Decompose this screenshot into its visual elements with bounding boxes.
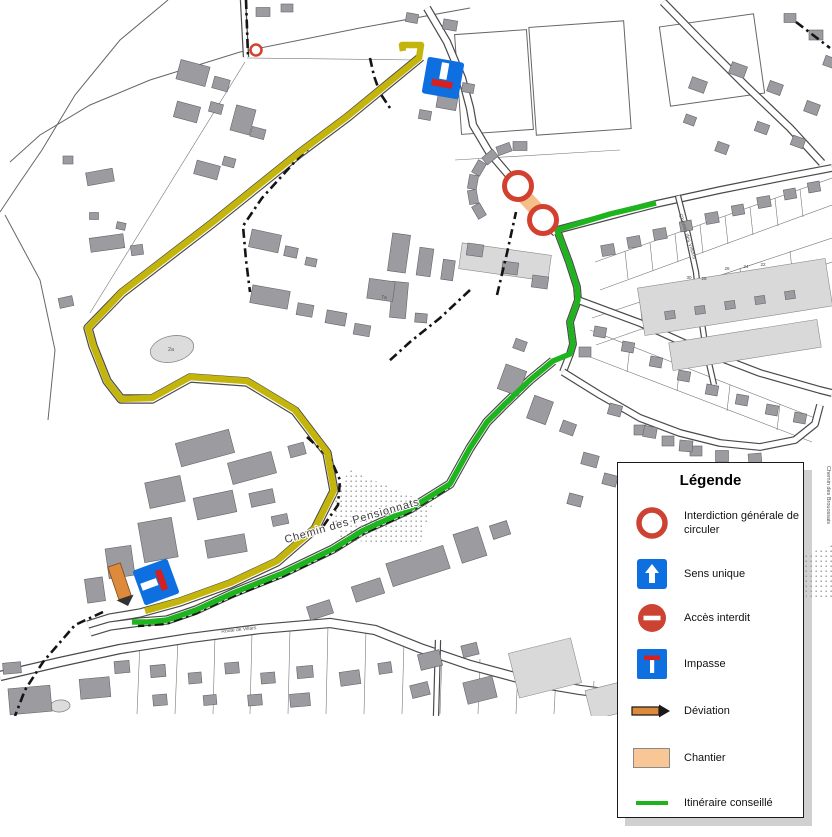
legend-item-itineraire: Itinéraire conseillé xyxy=(618,785,803,821)
building xyxy=(150,664,166,677)
building xyxy=(715,141,730,155)
building xyxy=(297,665,314,678)
building xyxy=(79,677,111,700)
parcel-line xyxy=(675,234,678,262)
building xyxy=(194,160,221,180)
building xyxy=(410,682,431,699)
building xyxy=(188,672,202,684)
building xyxy=(705,211,720,224)
sports-field xyxy=(529,21,631,135)
building xyxy=(86,168,115,185)
building xyxy=(767,80,784,95)
building xyxy=(531,275,549,289)
building xyxy=(664,310,675,319)
building xyxy=(90,213,99,220)
building xyxy=(463,676,497,705)
building xyxy=(116,222,126,231)
legend-item-deviation: Déviation xyxy=(618,693,803,729)
building xyxy=(296,303,314,318)
building xyxy=(305,257,317,267)
terrain-line xyxy=(5,215,55,420)
legend-title: Légende xyxy=(618,472,803,489)
building xyxy=(621,341,635,353)
building xyxy=(716,451,729,462)
building xyxy=(559,420,576,436)
road xyxy=(563,372,820,447)
building xyxy=(467,189,478,204)
deviation-map-image: Chemin des PensionnatsRoute de VillarsCh… xyxy=(0,0,832,837)
building xyxy=(461,642,479,658)
building xyxy=(416,247,434,277)
boundary-line xyxy=(796,22,830,48)
acces-interdit-icon xyxy=(631,602,673,634)
building xyxy=(679,440,693,452)
parcel-line xyxy=(90,62,245,313)
parcel-line xyxy=(326,625,328,714)
building xyxy=(731,204,745,216)
building xyxy=(153,694,168,706)
building xyxy=(114,660,130,673)
building xyxy=(804,100,821,115)
building xyxy=(418,110,431,121)
building xyxy=(288,442,307,458)
building xyxy=(130,244,143,256)
building xyxy=(306,600,333,621)
building xyxy=(754,121,770,135)
building xyxy=(250,126,266,139)
parcel-line xyxy=(725,216,728,244)
legend-label: Sens unique xyxy=(684,567,802,581)
building xyxy=(256,8,270,17)
interdiction-ring xyxy=(251,45,262,56)
street-label: Chemin des Brouossais xyxy=(825,466,831,524)
building xyxy=(643,425,658,438)
building xyxy=(84,577,105,603)
impasse-sign xyxy=(422,57,465,100)
building xyxy=(249,489,275,508)
building xyxy=(496,142,512,155)
building xyxy=(405,13,418,24)
legend-item-impasse: Impasse xyxy=(618,646,803,682)
stipple-area xyxy=(803,545,832,600)
building xyxy=(513,142,527,151)
building xyxy=(248,694,263,706)
deviation-icon xyxy=(631,702,673,720)
building xyxy=(378,662,392,675)
building xyxy=(705,384,719,396)
parcel-line xyxy=(750,207,753,235)
building xyxy=(466,243,484,257)
building xyxy=(579,347,591,357)
building xyxy=(784,290,795,299)
terrain-line xyxy=(10,8,470,162)
building xyxy=(593,326,607,338)
building xyxy=(387,233,410,273)
interdiction-ring xyxy=(505,173,532,200)
building xyxy=(339,670,361,687)
building xyxy=(289,693,310,708)
parcel-line xyxy=(455,150,620,160)
legend-label: Déviation xyxy=(684,704,802,718)
legend-label: Interdiction générale de circuler xyxy=(684,509,802,538)
chantier-icon xyxy=(631,747,673,769)
legend-item-acces-interdit: Accès interdit xyxy=(618,600,803,636)
parcel-line xyxy=(775,198,778,226)
legend-item-sens-unique: Sens unique xyxy=(618,556,803,592)
building xyxy=(193,490,237,520)
street-label: 22 xyxy=(760,262,766,267)
street-label: 7a xyxy=(381,295,387,301)
building xyxy=(757,195,772,208)
building xyxy=(683,114,696,126)
building xyxy=(225,662,240,674)
building xyxy=(203,694,217,705)
building xyxy=(442,19,458,31)
building xyxy=(567,493,583,507)
building xyxy=(467,174,478,189)
building xyxy=(581,452,600,468)
building xyxy=(677,370,691,382)
legend-label: Impasse xyxy=(684,657,802,671)
building xyxy=(222,156,236,168)
building xyxy=(138,517,178,562)
street-label: 28 xyxy=(701,276,707,281)
building xyxy=(8,685,52,715)
parcel-line xyxy=(247,58,418,60)
building xyxy=(783,188,797,200)
building xyxy=(453,527,487,564)
parcel-line xyxy=(288,629,290,714)
building xyxy=(261,672,276,684)
building xyxy=(472,160,487,177)
building xyxy=(63,156,73,164)
building xyxy=(724,300,735,309)
sports-fields xyxy=(455,14,765,135)
building xyxy=(627,235,642,248)
building xyxy=(415,313,428,323)
legend-panel: Légende Interdiction générale de circule… xyxy=(617,462,804,818)
building xyxy=(601,243,616,256)
building xyxy=(602,473,618,487)
building xyxy=(386,545,450,586)
parcel-line xyxy=(137,641,140,714)
building xyxy=(212,76,231,92)
terrain-line xyxy=(0,0,168,212)
building xyxy=(662,436,674,446)
building xyxy=(807,181,821,193)
building xyxy=(208,101,223,114)
parcel-line xyxy=(402,641,404,714)
building xyxy=(248,229,281,253)
building xyxy=(145,476,186,509)
building xyxy=(250,285,291,309)
building xyxy=(227,452,276,485)
building xyxy=(175,429,234,466)
building xyxy=(89,234,125,253)
building xyxy=(353,323,371,337)
building xyxy=(461,83,474,94)
building xyxy=(58,296,74,309)
parcel-line xyxy=(727,385,730,411)
building xyxy=(284,246,299,258)
building xyxy=(765,404,779,416)
parcel-line xyxy=(585,355,812,442)
street-label: 30 xyxy=(686,275,692,280)
building xyxy=(3,662,22,675)
building xyxy=(441,259,456,280)
building xyxy=(754,295,765,304)
building xyxy=(176,59,210,86)
legend-label: Itinéraire conseillé xyxy=(684,796,802,810)
parcel-line xyxy=(625,251,628,279)
building xyxy=(281,4,293,12)
building xyxy=(735,394,749,406)
parcel-line xyxy=(800,189,803,217)
impasse-sign xyxy=(132,558,179,605)
parcel-line xyxy=(364,629,366,714)
building xyxy=(653,227,668,240)
legend-label: Accès interdit xyxy=(684,611,802,625)
interdiction-icon xyxy=(631,505,673,541)
building xyxy=(784,14,796,23)
building xyxy=(823,55,832,69)
street-label: 26 xyxy=(724,266,730,271)
building xyxy=(271,513,289,526)
building xyxy=(513,338,528,352)
building xyxy=(173,101,200,123)
street-label: 2a xyxy=(168,347,175,353)
interdiction-ring xyxy=(530,207,557,234)
building xyxy=(694,305,705,314)
parcel-line xyxy=(650,243,653,271)
parcel-line xyxy=(700,225,703,253)
street-label: 24 xyxy=(743,264,749,269)
sens-unique-icon xyxy=(631,558,673,590)
parcel-line xyxy=(175,638,178,714)
building xyxy=(649,356,663,368)
legend-label: Chantier xyxy=(684,751,802,765)
pond xyxy=(50,699,71,713)
building xyxy=(489,521,510,540)
legend-item-chantier: Chantier xyxy=(618,740,803,776)
legend-item-interdiction: Interdiction générale de circuler xyxy=(618,505,803,541)
building xyxy=(205,534,248,559)
building xyxy=(793,412,807,424)
building xyxy=(472,203,487,220)
building xyxy=(325,310,347,326)
impasse-icon xyxy=(631,648,673,680)
building xyxy=(351,578,384,602)
itineraire-icon xyxy=(631,798,673,808)
building xyxy=(526,395,553,424)
